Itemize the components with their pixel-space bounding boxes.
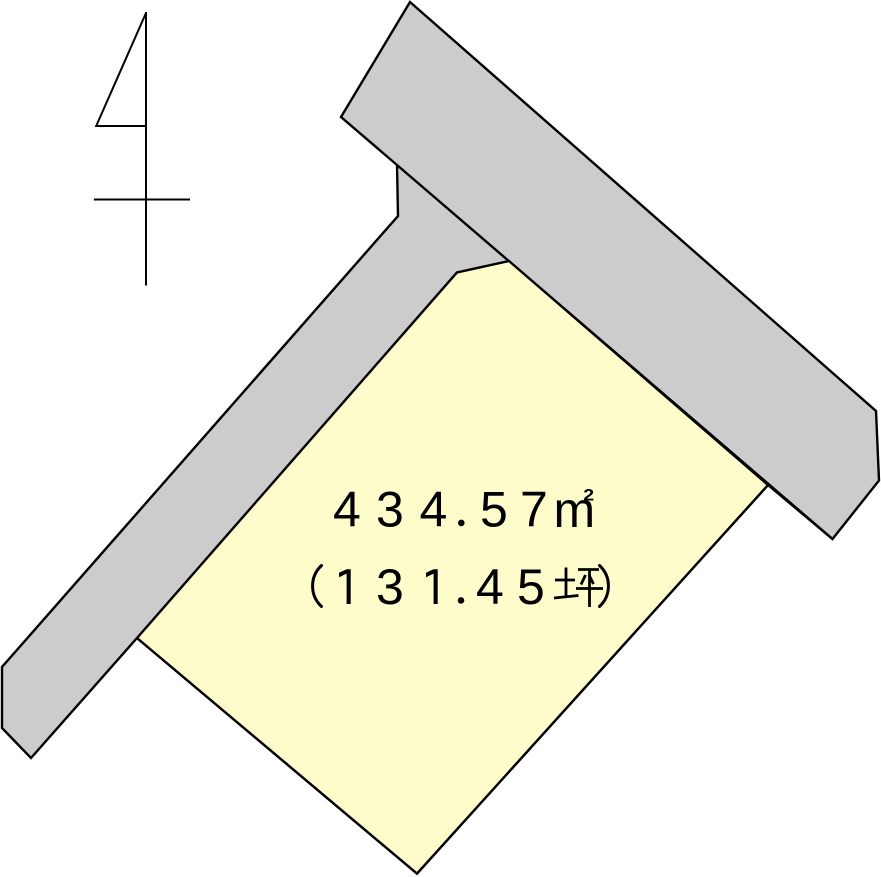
svg-text:5: 5 bbox=[480, 482, 508, 538]
svg-text:4: 4 bbox=[420, 482, 448, 538]
svg-text:3: 3 bbox=[376, 559, 404, 615]
svg-text:3: 3 bbox=[376, 482, 404, 538]
svg-text:4: 4 bbox=[476, 559, 504, 615]
svg-text:2: 2 bbox=[583, 485, 594, 504]
svg-text:4: 4 bbox=[333, 482, 361, 538]
svg-text:5: 5 bbox=[517, 559, 545, 615]
svg-text:7: 7 bbox=[520, 482, 548, 538]
